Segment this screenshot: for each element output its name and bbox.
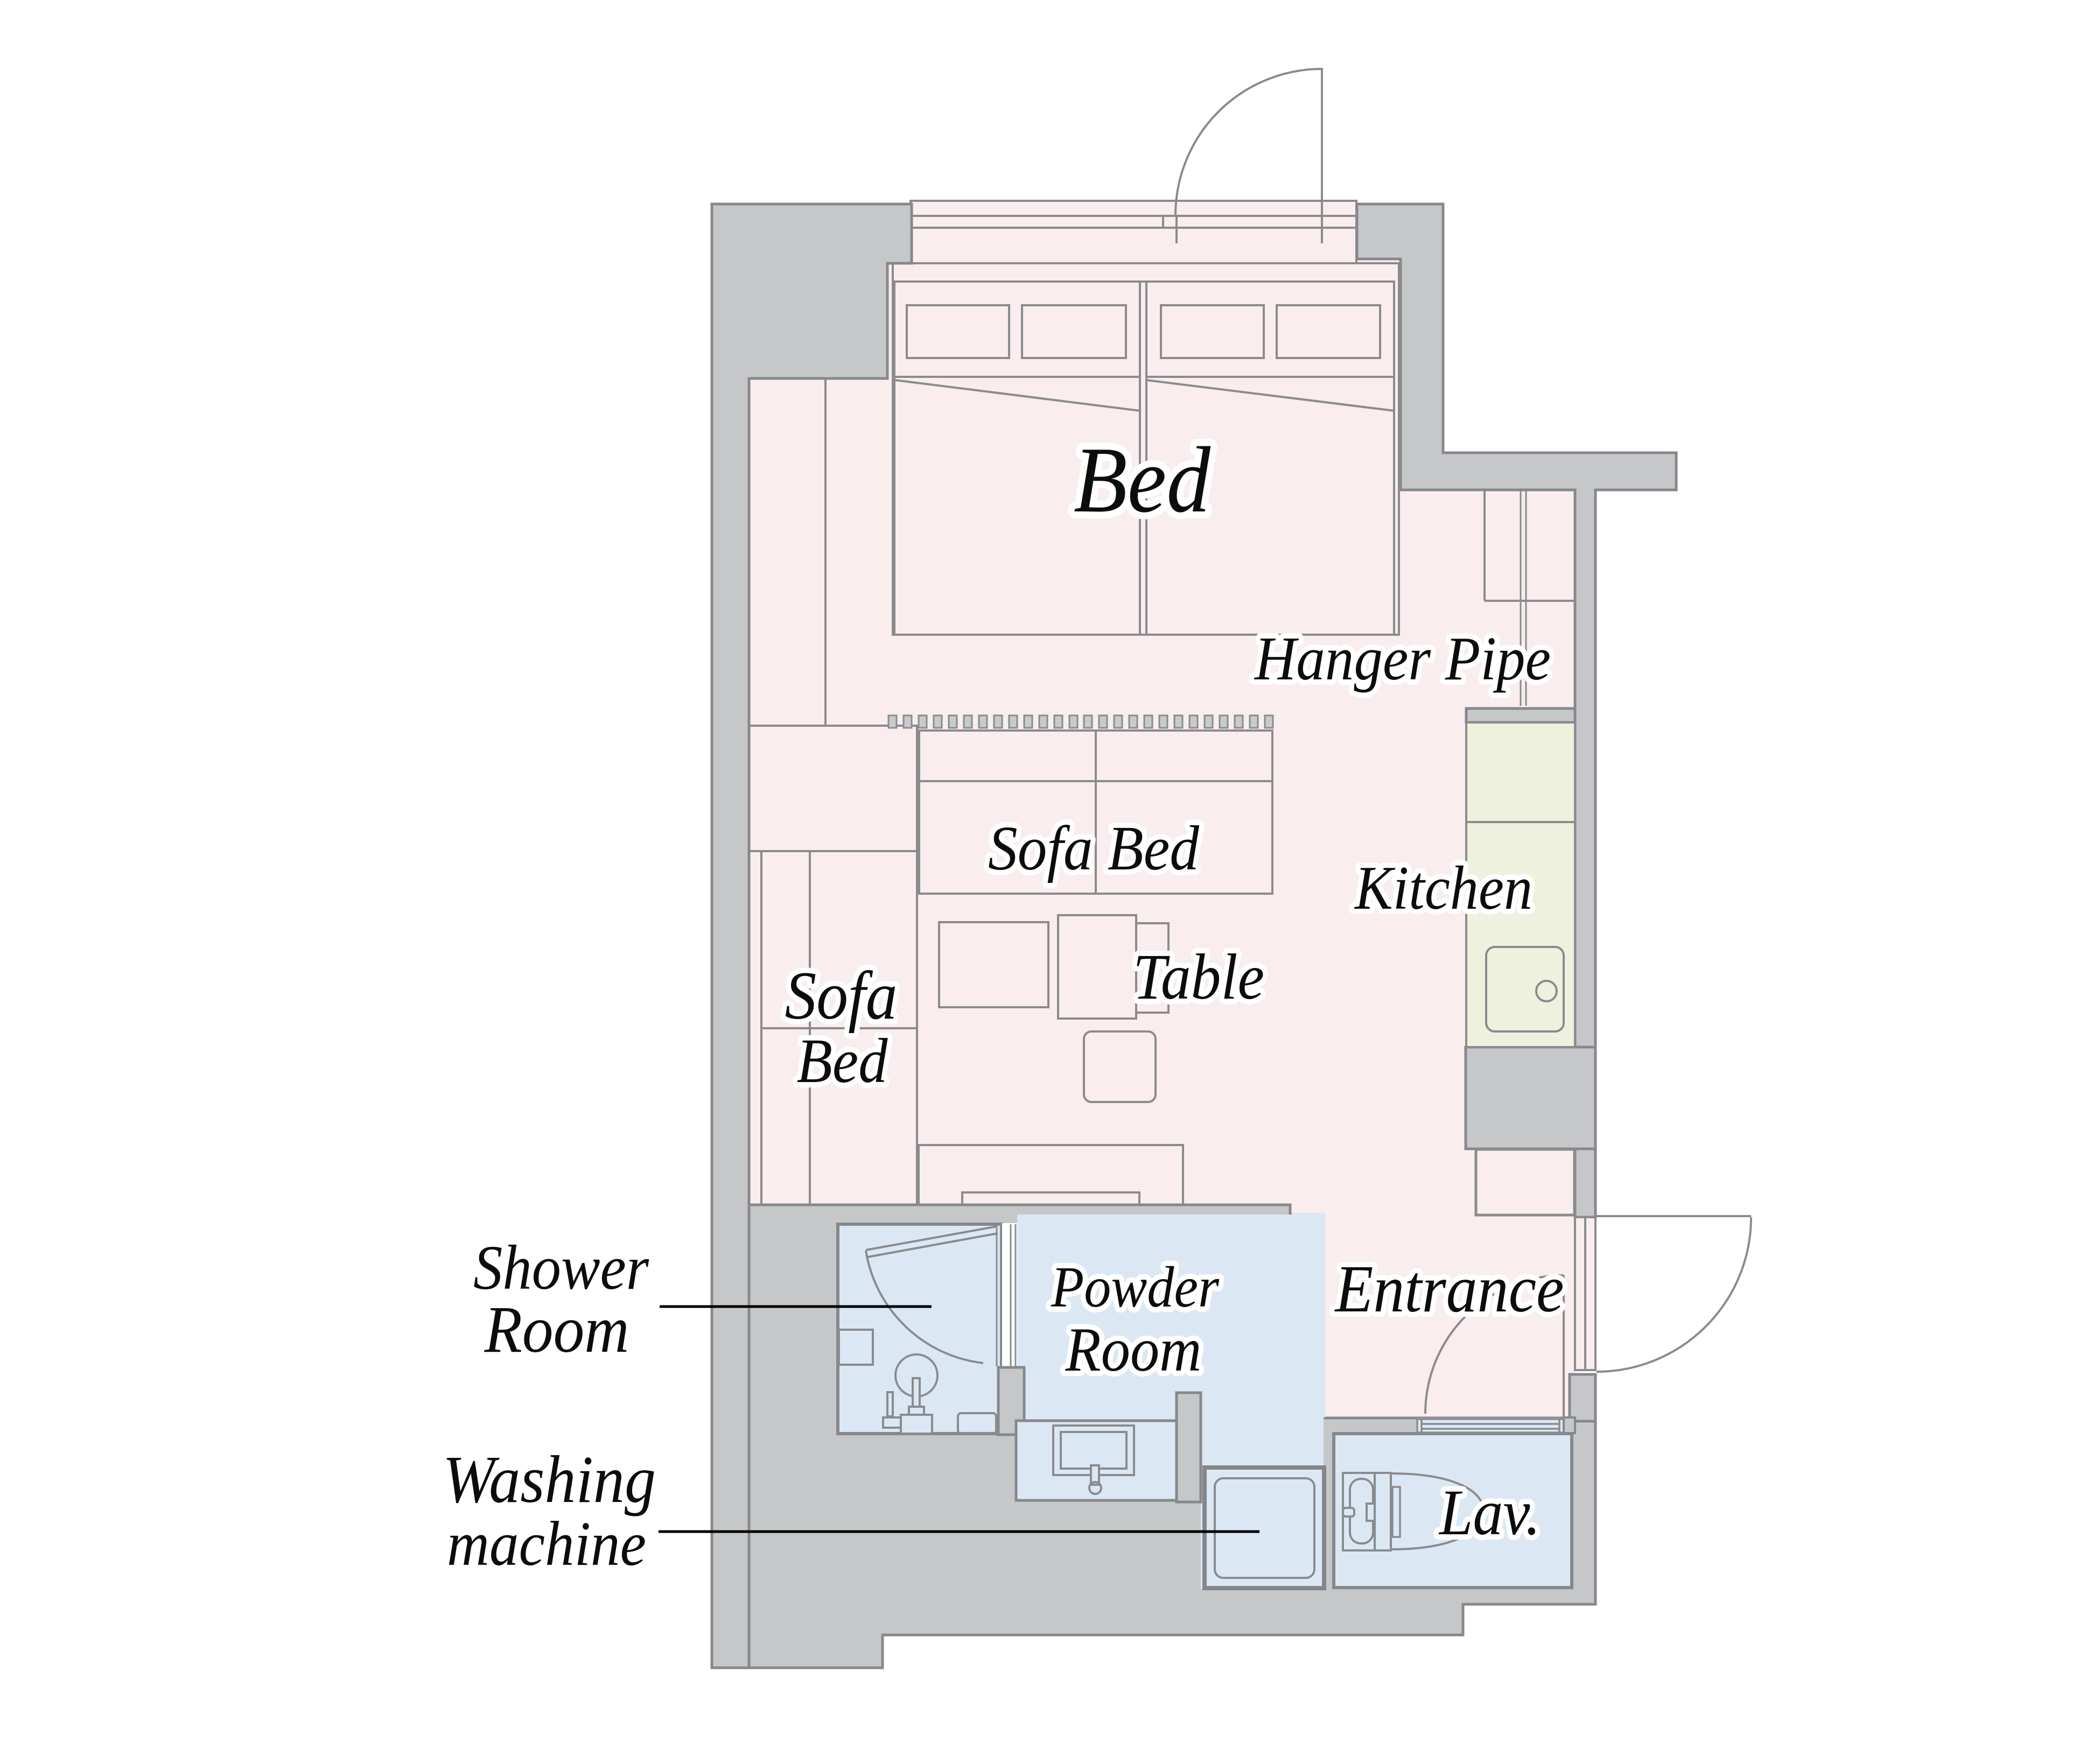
svg-text:Sofa: Sofa [785,958,898,1034]
svg-text:Kitchen: Kitchen [1354,854,1532,922]
svg-text:Washing: Washing [443,1443,656,1517]
svg-text:Table: Table [1133,941,1264,1013]
svg-text:Room: Room [484,1293,629,1366]
svg-text:Lav.: Lav. [1438,1477,1541,1549]
svg-text:Room: Room [1065,1315,1202,1385]
svg-text:Hanger Pipe: Hanger Pipe [1254,624,1551,693]
svg-text:Sofa Bed: Sofa Bed [988,813,1200,883]
svg-text:Powder: Powder [1051,1255,1220,1319]
svg-text:Bed: Bed [797,1026,888,1096]
svg-text:machine: machine [447,1508,646,1579]
svg-text:Bed: Bed [1074,427,1210,532]
svg-text:Entrance: Entrance [1334,1252,1564,1326]
